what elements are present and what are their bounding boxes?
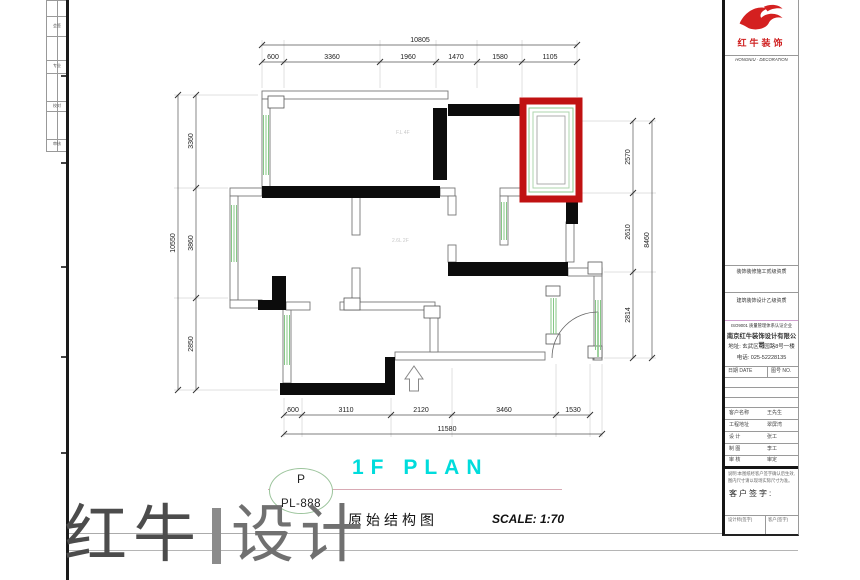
tb-line [725,431,798,432]
tb-row-value: 张工 [767,434,777,440]
dim-left-seg: 3360 [188,133,195,149]
tb-row-label: 制 图 [729,446,740,452]
tb-line [725,397,798,398]
tb-row-label: 工程地址 [729,422,749,428]
tb-cell-right: 客户(签字) [768,517,788,522]
tb-row-value: 审定 [767,457,777,463]
dim-bottom-seg: 3110 [338,407,353,414]
tb-line [725,265,798,266]
tb-line [725,407,798,408]
drawing-sheet: 会签 专业 校对 审核 [0,0,860,580]
window-hatches [232,115,601,365]
dim-top-seg: 1960 [400,54,416,61]
tb-row-label: 客户名称 [729,410,749,416]
tb-line [725,455,798,456]
dim-bottom-seg: 600 [287,407,299,414]
tb-meta-left: 日期 DATE [728,368,752,374]
plan-title: 1F PLAN [352,456,489,480]
dim-top-seg: 1470 [448,54,464,61]
tb-cert-row1: 装饰装修施工贰级资质 [725,269,798,275]
entry-arrow-icon [405,366,423,391]
dim-bottom-seg: 2120 [413,407,429,414]
dim-left-seg: 2850 [188,336,195,352]
tb-info-header: ISO9001 质量管理体系认证企业 [725,323,798,328]
tb-phone: 电话: 025-52228135 [725,353,798,361]
dim-right-seg: 2570 [625,149,632,165]
tb-line [725,515,798,516]
watermark-divider [212,508,221,564]
title-block: 红牛装饰 HONGNIU · DECORATION 装饰装修施工贰级资质 建筑装… [722,0,799,536]
dim-left-seg: 3860 [188,235,195,251]
level-annotation: 2.6L 2F [392,238,409,244]
tb-note2: 图内尺寸请以现场实际尺寸为准。 [728,478,796,483]
tb-meta-divider [767,366,768,377]
tb-line-pink [725,320,798,321]
dim-top-seg: 1105 [542,54,557,61]
dim-right-seg: 2610 [625,224,632,240]
tb-row-value: 王先生 [767,410,782,416]
tb-cell-divider [765,515,766,534]
dim-top-seg: 600 [267,54,279,61]
dim-top-seg: 3360 [324,54,340,61]
logo-slogan: HONGNIU · DECORATION [725,57,798,62]
tb-line [725,443,798,444]
scale-label: SCALE: 1:70 [492,512,564,526]
tb-line [725,292,798,293]
watermark-part1: 红牛 [64,504,202,567]
balcony-window [529,108,573,192]
watermark: 红牛 设计 [64,504,369,567]
tb-line-thick [725,466,798,469]
logo-box: 红牛装饰 [725,0,798,56]
tb-sign-label: 客户签字: [729,488,773,499]
dim-top-seg: 1580 [492,54,508,61]
dim-bottom-total: 11580 [438,426,457,433]
dim-right-seg: 2814 [625,307,632,323]
tb-line [725,387,798,388]
tb-line [725,366,798,367]
tb-address: 地址: 玄武区花园路8号一楼 [725,342,798,350]
bull-logo-icon [734,3,790,31]
tb-row-value: 翠屏湾 [767,422,782,428]
watermark-part2: 设计 [231,504,369,567]
tb-cell-left: 设计师(签字) [728,517,752,522]
dim-left-total: 10550 [170,233,177,253]
dim-top-total: 10805 [410,37,430,44]
walls-structural [258,104,578,395]
stamp-letter: P [270,472,332,486]
logo-company-name: 红牛装饰 [725,36,798,49]
tb-row-label: 审 核 [729,457,740,463]
level-annotation: F.L 4F [396,130,410,136]
tb-row-value: 李工 [767,446,777,452]
tb-meta-right: 图号 NO. [771,368,791,374]
dim-right-total: 8460 [644,232,651,248]
dim-bottom-seg: 3460 [496,407,512,414]
tb-line [725,377,798,378]
tb-note1: 说明:本图纸经客户签字确认后生效, [728,471,796,476]
dim-bottom-seg: 1530 [565,407,581,414]
tb-line [725,419,798,420]
tb-row-label: 设 计 [729,434,740,440]
tb-cert-row2: 建筑装饰设计乙级资质 [725,298,798,304]
